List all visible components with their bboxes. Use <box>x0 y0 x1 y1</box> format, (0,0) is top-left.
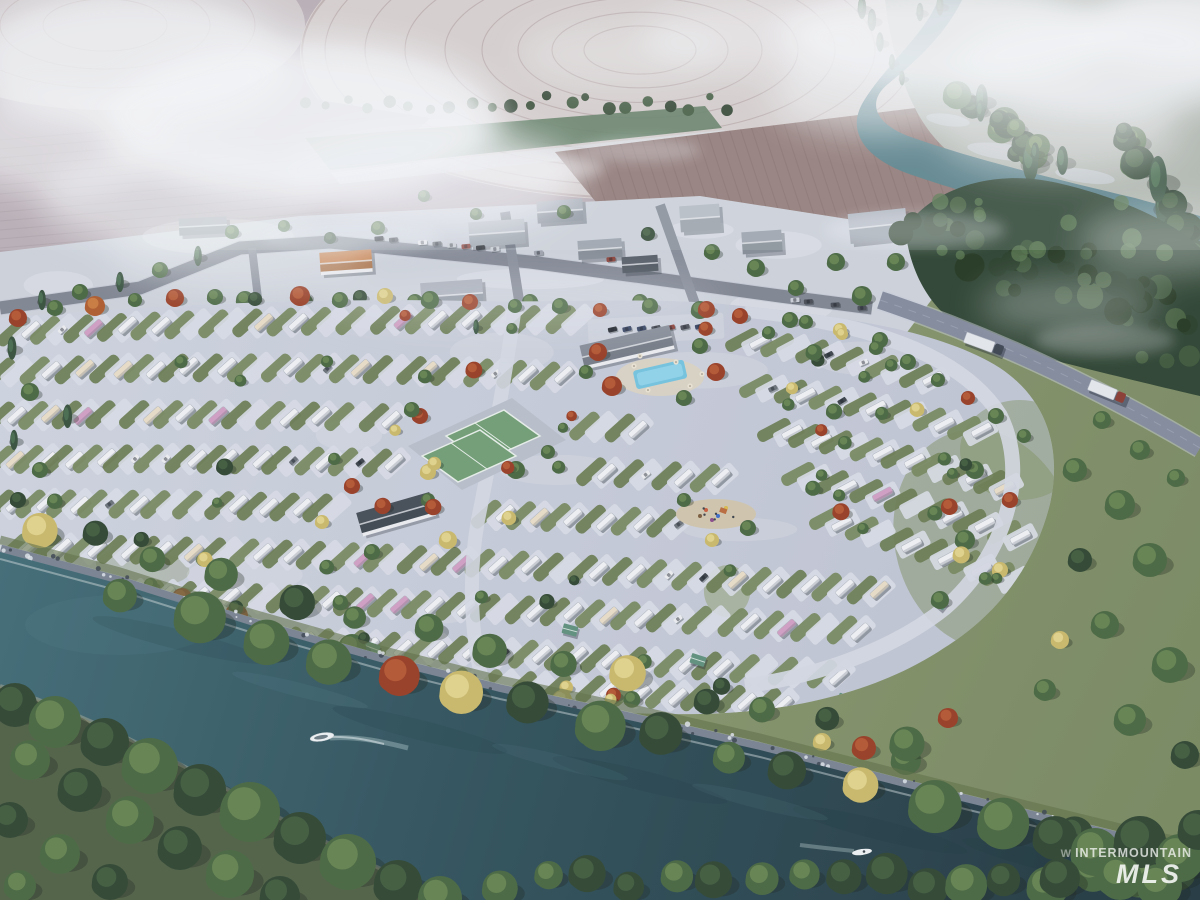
scene-canvas <box>0 0 1200 900</box>
color-grade <box>0 0 1200 900</box>
aerial-photo: W INTERMOUNTAIN MLS <box>0 0 1200 900</box>
